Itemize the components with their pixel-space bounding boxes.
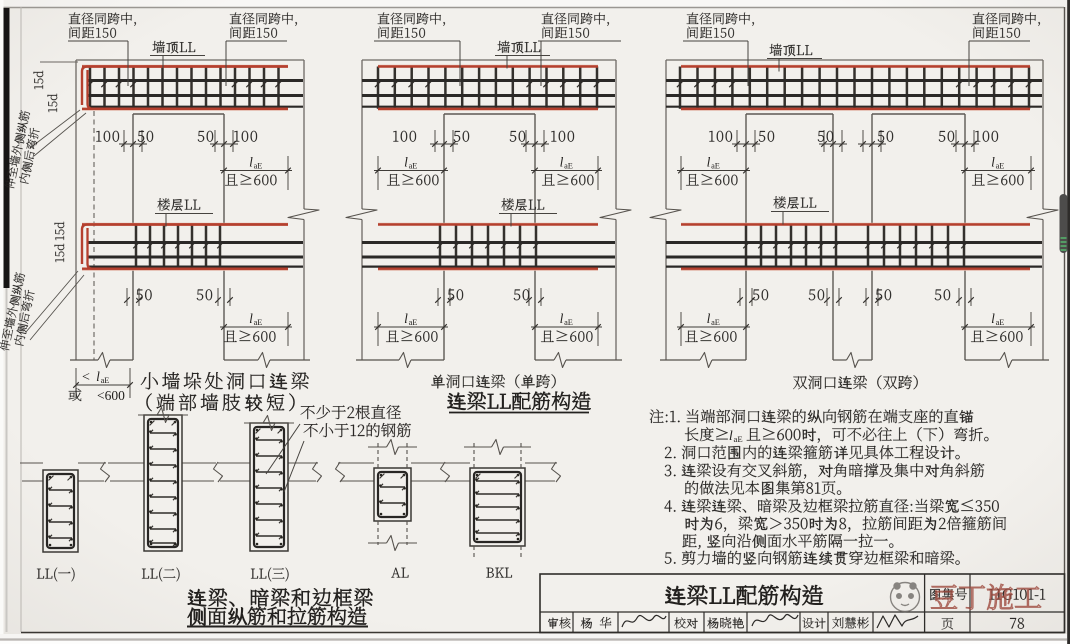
svg-text:aE: aE <box>711 318 720 327</box>
svg-text:aE: aE <box>254 162 263 171</box>
svg-text:aE: aE <box>409 162 418 171</box>
svg-text:l: l <box>404 155 408 170</box>
svg-text:l: l <box>729 429 733 444</box>
svg-text:l: l <box>249 155 253 170</box>
svg-text:aE: aE <box>734 434 743 444</box>
svg-text:l: l <box>707 155 711 170</box>
svg-text:aE: aE <box>996 318 1005 327</box>
svg-text:aE: aE <box>101 376 110 385</box>
svg-text:aE: aE <box>564 318 573 327</box>
svg-text:l: l <box>991 155 995 170</box>
svg-text:aE: aE <box>996 162 1005 171</box>
svg-text:l: l <box>707 311 711 326</box>
svg-text:l: l <box>404 311 408 326</box>
svg-text:l: l <box>249 311 253 326</box>
svg-text:l: l <box>560 155 564 170</box>
svg-text:aE: aE <box>254 318 263 327</box>
svg-text:l: l <box>991 311 995 326</box>
svg-text:<: < <box>82 370 90 385</box>
svg-text:aE: aE <box>564 162 573 171</box>
svg-text:aE: aE <box>409 318 418 327</box>
svg-text:<600: <600 <box>97 388 125 403</box>
svg-text:aE: aE <box>711 162 720 171</box>
svg-text:l: l <box>96 369 100 384</box>
svg-text:l: l <box>560 311 564 326</box>
